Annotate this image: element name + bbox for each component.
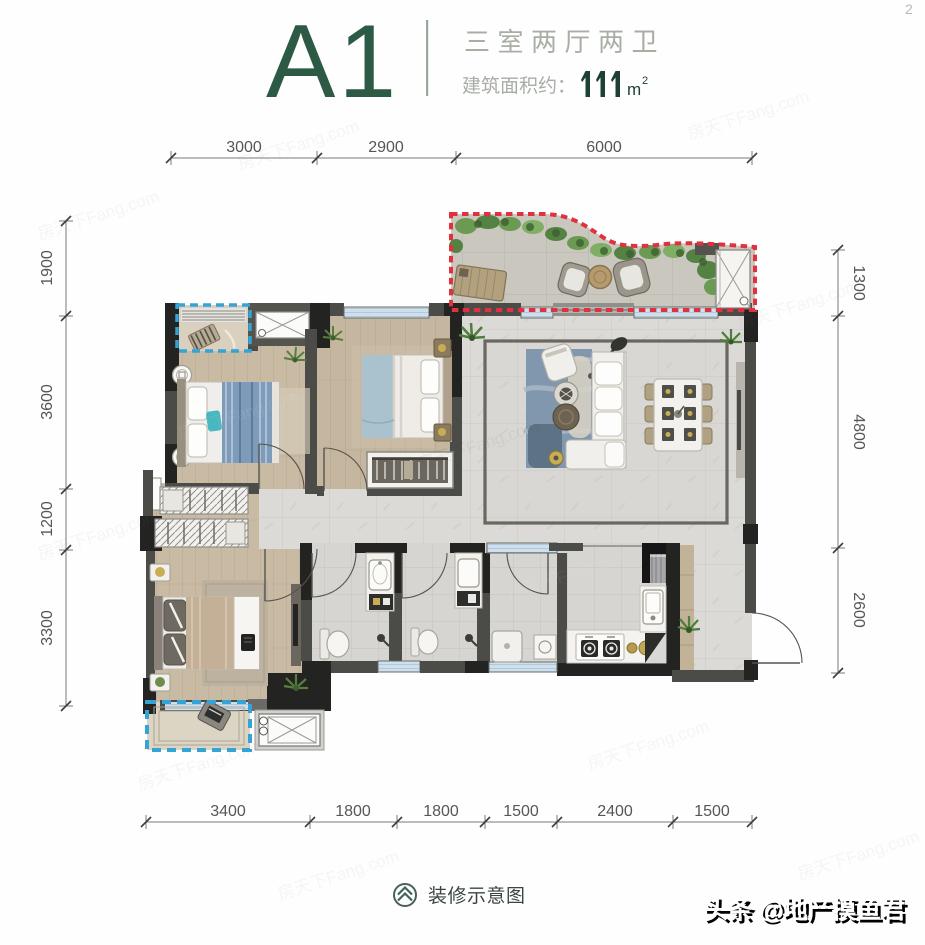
svg-text:房天下Fang.com: 房天下Fang.com	[685, 87, 811, 144]
svg-text:2: 2	[905, 1, 913, 17]
svg-text:1500: 1500	[694, 803, 730, 820]
svg-text:2900: 2900	[368, 139, 404, 156]
svg-text:2600: 2600	[850, 592, 867, 628]
svg-text:装修示意图: 装修示意图	[428, 885, 526, 907]
svg-text:房天下Fang.com: 房天下Fang.com	[35, 187, 161, 244]
svg-text:1900: 1900	[39, 250, 56, 286]
svg-text:1200: 1200	[39, 501, 56, 537]
svg-text:2: 2	[642, 75, 648, 87]
svg-text:三室两厅两卫: 三室两厅两卫	[464, 27, 665, 57]
svg-text:房天下Fang.com: 房天下Fang.com	[275, 847, 401, 904]
svg-text:房天下Fang.com: 房天下Fang.com	[585, 717, 711, 774]
svg-text:6000: 6000	[586, 139, 622, 156]
svg-text:3400: 3400	[210, 803, 246, 820]
svg-text:1500: 1500	[503, 803, 539, 820]
svg-text:头条 @地产摸鱼君: 头条 @地产摸鱼君	[703, 896, 905, 924]
svg-text:1800: 1800	[423, 803, 459, 820]
svg-text:建筑面积约：: 建筑面积约：	[462, 75, 576, 97]
svg-text:A1: A1	[266, 4, 399, 120]
svg-text:房天下Fang.com: 房天下Fang.com	[795, 827, 921, 884]
svg-text:3600: 3600	[39, 384, 56, 420]
svg-text:4800: 4800	[850, 414, 867, 450]
svg-text:2400: 2400	[597, 803, 633, 820]
svg-text:3300: 3300	[39, 610, 56, 646]
svg-text:1800: 1800	[335, 803, 371, 820]
svg-text:m: m	[627, 80, 641, 99]
